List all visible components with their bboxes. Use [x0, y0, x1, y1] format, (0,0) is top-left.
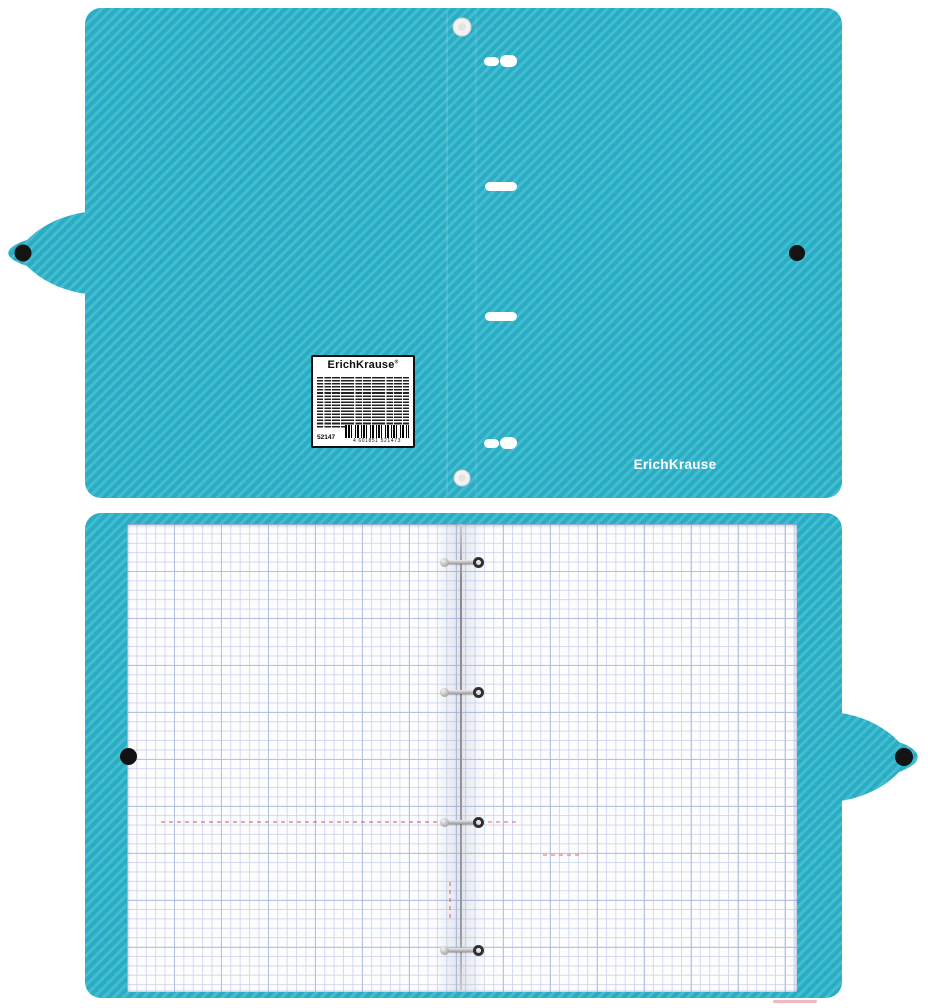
ring-clip-icon: [473, 687, 484, 698]
ring-ball-icon: [440, 558, 449, 567]
red-margin-fragment-3: [449, 882, 451, 922]
squared-paper-pages: [127, 524, 797, 992]
red-margin-line-left-page: [161, 821, 451, 823]
ring-ball-icon: [440, 688, 449, 697]
barcode-bars-icon: [345, 425, 409, 438]
snap-button-tab-icon: [895, 748, 913, 766]
ring-clip-icon: [473, 817, 484, 828]
label-brand-title: ErichKrause®: [313, 359, 413, 371]
page-edge-peek: [773, 1000, 817, 1003]
snap-button-peek-icon: [120, 748, 137, 765]
ring-ball-icon: [440, 946, 449, 955]
label-brand-text: ErichKrause: [328, 359, 395, 371]
binder-ring-1: [440, 556, 484, 569]
binder-ring-2: [440, 686, 484, 699]
binder-ring-4: [440, 944, 484, 957]
product-photo-stage: ErichKrause ErichKrause® 52147 4 601851 …: [0, 0, 928, 1008]
ring-ball-icon: [440, 818, 449, 827]
label-article-number: 52147: [317, 434, 335, 441]
ring-clip-icon: [473, 557, 484, 568]
page-gutter-line: [460, 524, 462, 992]
label-fine-print: [317, 377, 409, 429]
label-trademark: ®: [395, 359, 399, 365]
product-label: ErichKrause® 52147 4 601851 521473: [311, 355, 415, 448]
ring-clip-icon: [473, 945, 484, 956]
barcode-digits: 4 601851 521473: [345, 438, 409, 444]
red-margin-fragment-2: [543, 854, 579, 856]
binder-ring-3: [440, 816, 484, 829]
red-margin-fragment-1: [488, 821, 520, 823]
barcode: 4 601851 521473: [345, 425, 409, 445]
